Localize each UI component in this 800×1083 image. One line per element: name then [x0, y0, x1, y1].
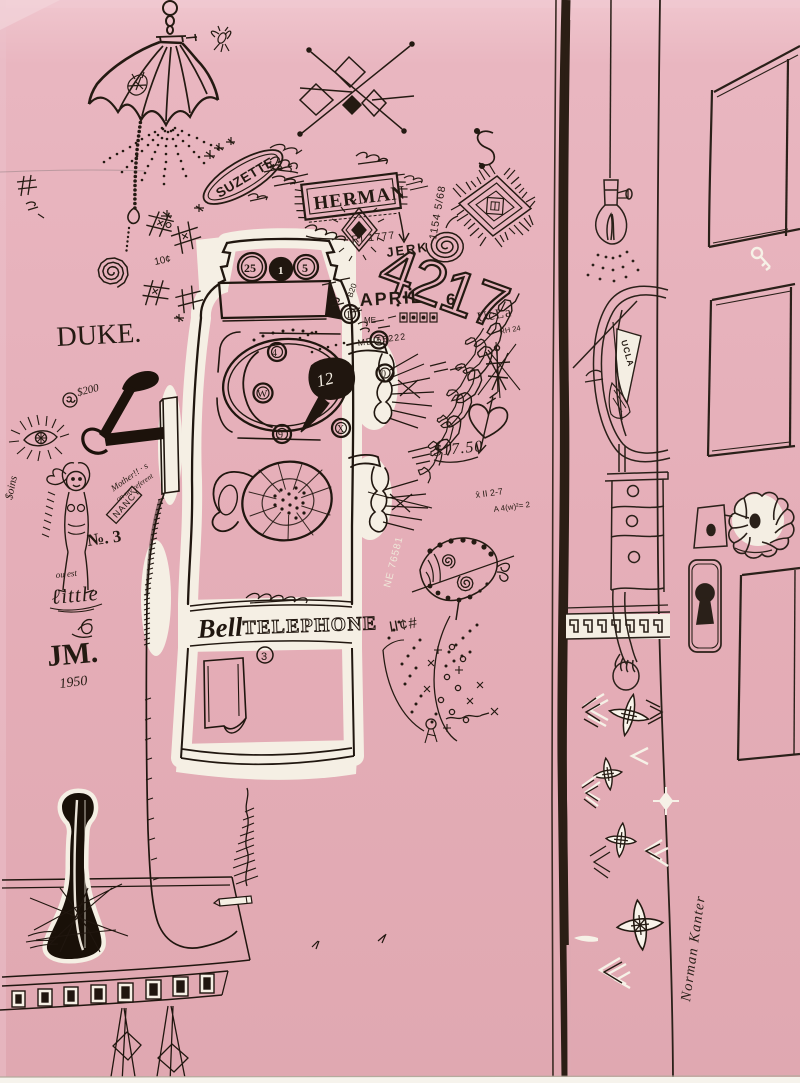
- svg-text:X: X: [337, 424, 345, 435]
- svg-text:ME: ME: [364, 316, 376, 325]
- svg-text:3: 3: [261, 651, 267, 663]
- svg-text:4: 4: [272, 348, 277, 359]
- svg-text:JM.: JM.: [46, 636, 100, 673]
- svg-text:1: 1: [278, 265, 284, 277]
- svg-text:0: 0: [381, 369, 386, 380]
- svg-text:DUKE.: DUKE.: [56, 318, 142, 353]
- svg-text:APRIL: APRIL: [359, 287, 424, 310]
- svg-text:Bell: Bell: [196, 612, 244, 644]
- svg-text:25: 25: [244, 261, 256, 275]
- svg-text:W: W: [257, 388, 268, 400]
- svg-text:6: 6: [446, 290, 455, 309]
- svg-text:5: 5: [302, 261, 308, 275]
- svg-text:1: 1: [346, 310, 351, 321]
- svg-text:ℓittle: ℓittle: [50, 581, 99, 609]
- svg-text:9: 9: [278, 430, 283, 441]
